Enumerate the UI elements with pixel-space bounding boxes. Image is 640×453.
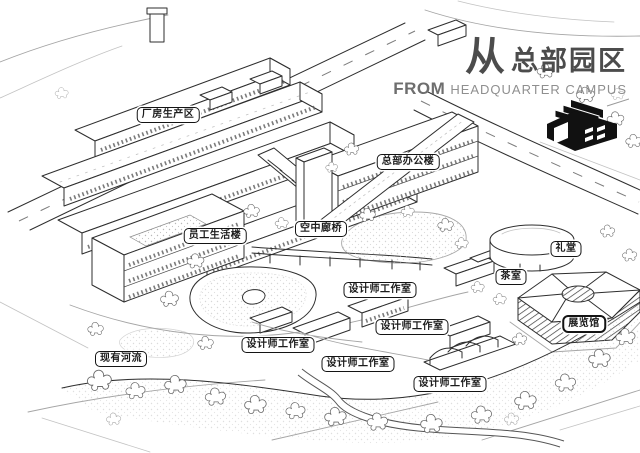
factory-building-icon (541, 98, 629, 154)
label-factory-production-area: 厂房生产区 (137, 107, 200, 123)
label-designer-studio-1: 设计师工作室 (344, 282, 417, 298)
label-hq-office-building: 总部办公楼 (377, 154, 440, 170)
title-chinese: 从 总部园区 (393, 38, 627, 78)
label-sky-bridge: 空中廊桥 (295, 221, 347, 237)
label-auditorium: 礼堂 (551, 241, 582, 257)
label-existing-river: 现有河流 (95, 351, 147, 367)
label-employee-living-building: 员工生活楼 (184, 228, 247, 244)
label-designer-studio-4: 设计师工作室 (322, 356, 395, 372)
label-designer-studio-5: 设计师工作室 (414, 376, 487, 392)
label-exhibition-hall: 展览馆 (562, 315, 606, 333)
title-en-campus: HEADQUARTER CAMPUS (450, 82, 627, 97)
title-cn-from: 从 (465, 38, 505, 76)
title-english: FROM HEADQUARTER CAMPUS (393, 79, 627, 99)
title-en-from: FROM (393, 79, 445, 99)
label-designer-studio-3: 设计师工作室 (242, 337, 315, 353)
title-cn-campus: 总部园区 (511, 39, 627, 78)
label-tea-room: 茶室 (496, 269, 527, 285)
label-designer-studio-2: 设计师工作室 (376, 319, 449, 335)
map-title: 从 总部园区 FROM HEADQUARTER CAMPUS (393, 38, 627, 99)
garden-mound (342, 206, 469, 264)
campus-map-page: 从 总部园区 FROM HEADQUARTER CAMPUS 厂房生产区 总部办… (0, 0, 640, 453)
